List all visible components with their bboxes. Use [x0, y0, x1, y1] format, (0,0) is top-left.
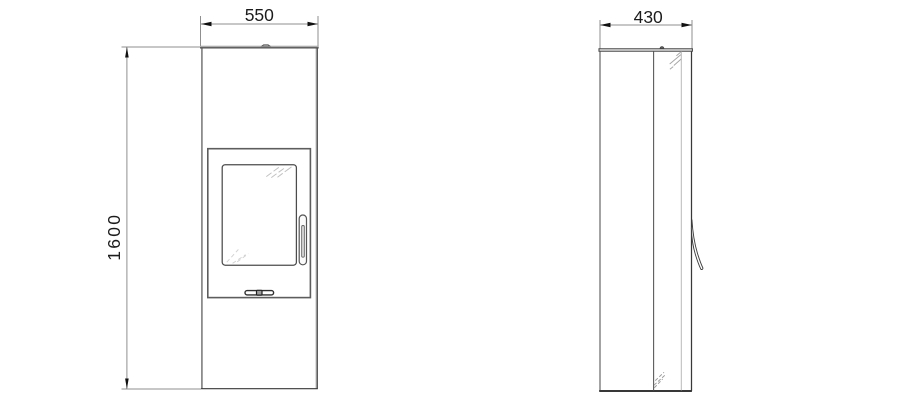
svg-text:550: 550	[245, 5, 274, 25]
svg-text:1600: 1600	[104, 213, 124, 261]
svg-text:430: 430	[634, 7, 663, 27]
